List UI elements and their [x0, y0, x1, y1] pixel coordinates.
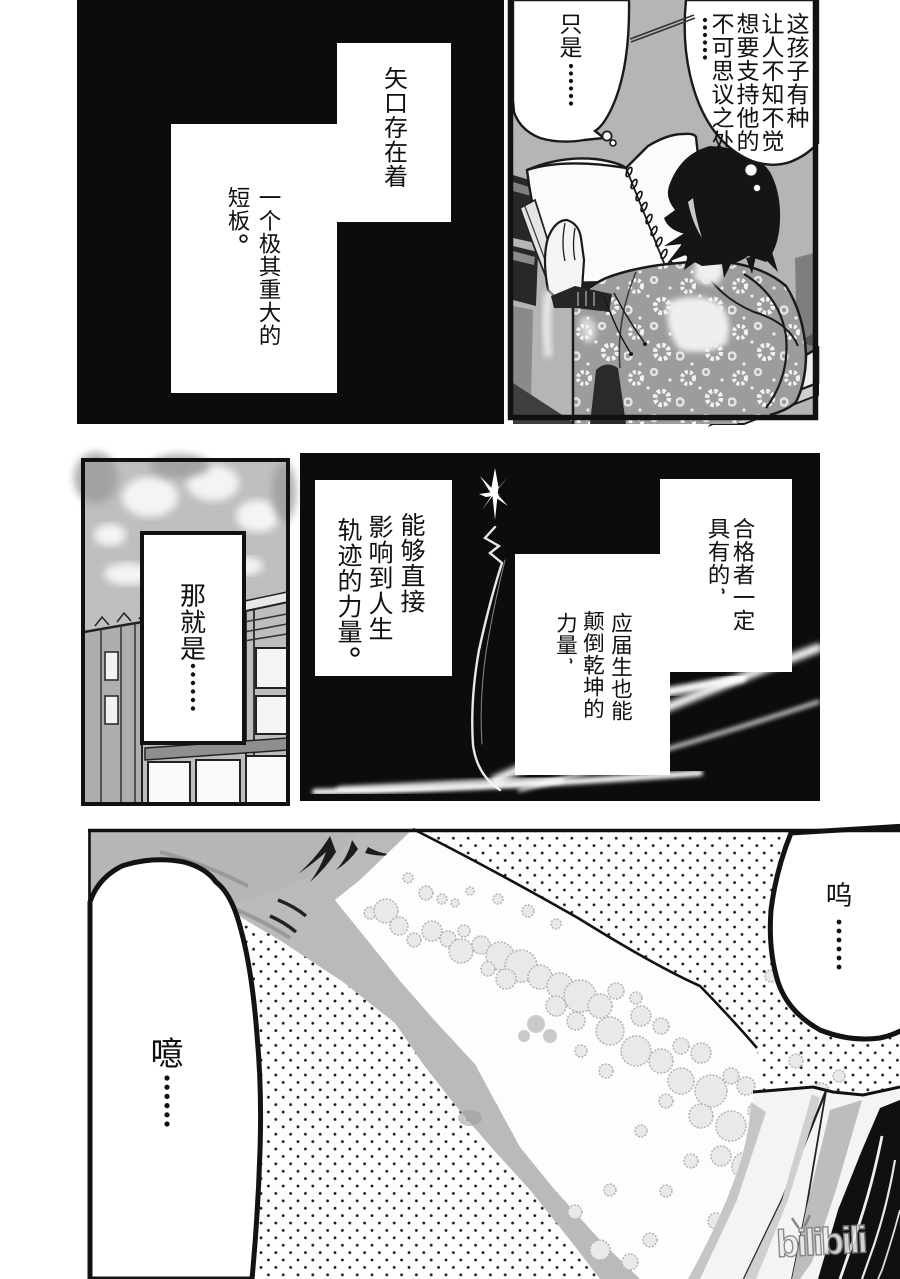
svg-text:bilibili: bilibili: [775, 1219, 866, 1266]
